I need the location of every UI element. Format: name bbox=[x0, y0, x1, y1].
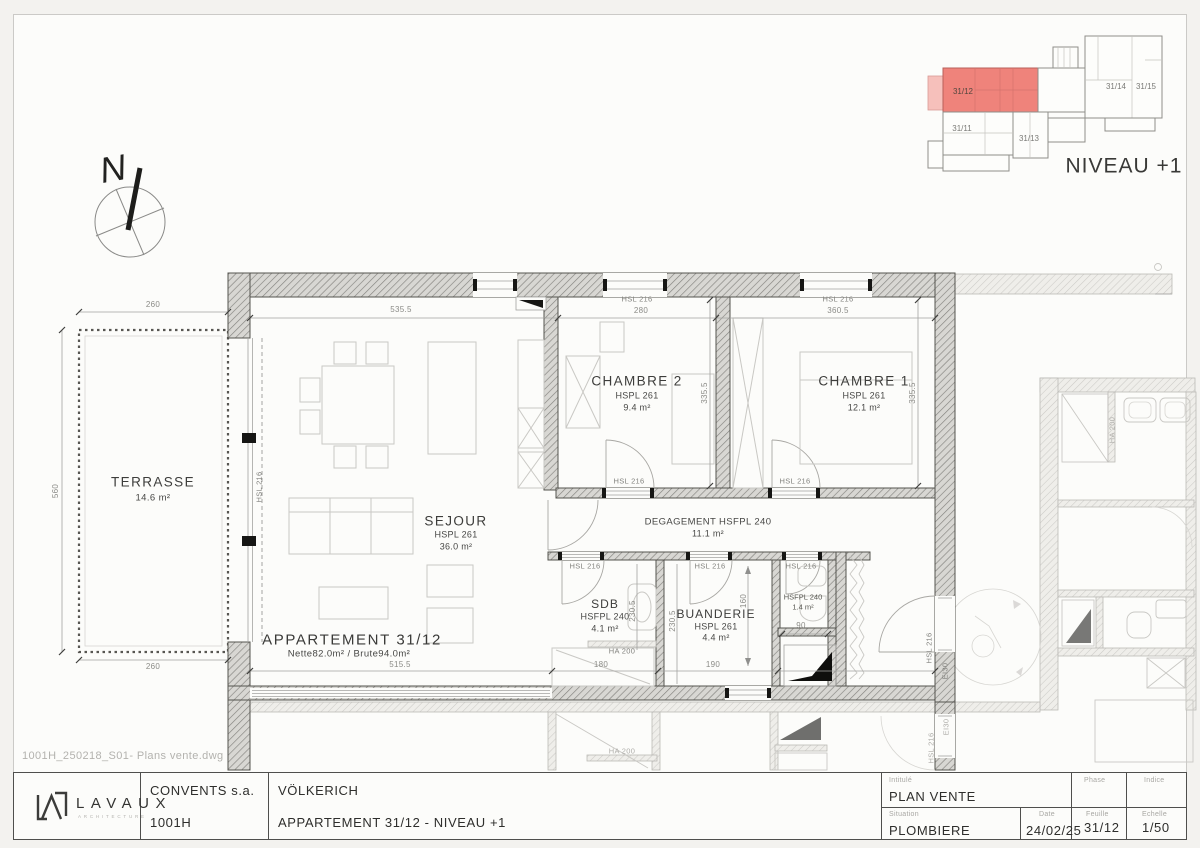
sejour-height: HSPL 261 bbox=[434, 531, 477, 540]
accessibility-clearance-symbol bbox=[945, 589, 1041, 685]
dim-lower-fire-rating: EI30 bbox=[942, 719, 950, 736]
title-block: LAVAUX ARCHITECTURE CONVENTS s.a. 1001H … bbox=[13, 772, 1187, 840]
intitule-value: PLAN VENTE bbox=[889, 789, 976, 804]
file-name-label: 1001H_250218_S01- Plans vente.dwg bbox=[22, 750, 224, 762]
wc-height: HSFPL 240 bbox=[784, 593, 823, 601]
indice-field-label: Indice bbox=[1144, 777, 1164, 784]
dim-sdb-width: 230.5 bbox=[629, 600, 637, 622]
keyplan-unit-3113: 31/13 bbox=[1019, 135, 1039, 143]
dim-ch1-depth: 335.5 bbox=[909, 382, 917, 404]
project-name: VÖLKERICH bbox=[278, 783, 359, 798]
dim-ch1-width: 360.5 bbox=[827, 307, 849, 315]
dim-ch1-door: HSL 216 bbox=[779, 477, 810, 485]
client-name: CONVENTS s.a. bbox=[150, 783, 255, 798]
dim-ch2-width: 280 bbox=[634, 307, 648, 315]
keyplan-unit-3115: 31/15 bbox=[1136, 83, 1156, 91]
keyplan-unit-3111: 31/11 bbox=[952, 125, 971, 133]
dim-ch2-door: HSL 216 bbox=[613, 477, 644, 485]
dim-ch2-window: HSL 216 bbox=[621, 295, 652, 303]
dim-lower-halfwall: HA 200 bbox=[609, 747, 635, 755]
dim-sdb-halfwall: HA 200 bbox=[609, 647, 635, 655]
dim-entry-door: HSL 216 bbox=[925, 632, 933, 663]
date-field-label: Date bbox=[1039, 811, 1055, 818]
dim-buanderie-bottom: 190 bbox=[706, 661, 720, 669]
degagement-area: 11.1 m² bbox=[692, 530, 724, 539]
dim-wc-door: HSL 216 bbox=[785, 562, 816, 570]
feuille-field-label: Feuille bbox=[1086, 811, 1109, 818]
level-label: NIVEAU +1 bbox=[1066, 156, 1183, 177]
dim-ch1-window: HSL 216 bbox=[822, 295, 853, 303]
dim-terrace-window: HSL 216 bbox=[255, 471, 263, 502]
dim-terrace-bottom: 260 bbox=[146, 663, 160, 671]
dim-lower-door: HSL 216 bbox=[927, 732, 935, 763]
sdb-height: HSFPL 240 bbox=[581, 613, 630, 622]
project-number: 1001H bbox=[150, 815, 191, 830]
dim-apartment-bottom: 515.5 bbox=[389, 661, 411, 669]
neighbor-top-wall bbox=[940, 264, 1172, 295]
chambre2-area: 9.4 m² bbox=[623, 404, 650, 413]
apartment-label: APPARTEMENT 31/12 bbox=[262, 633, 442, 648]
sdb-area: 4.1 m² bbox=[591, 625, 618, 634]
terrasse-label: TERRASSE bbox=[111, 475, 195, 489]
drawing-title: APPARTEMENT 31/12 - NIVEAU +1 bbox=[278, 815, 506, 830]
buanderie-height: HSPL 261 bbox=[694, 623, 737, 632]
dim-buanderie-length: 160 bbox=[740, 594, 748, 608]
floor-plan-drawing bbox=[0, 0, 1200, 848]
title-block-divider bbox=[1126, 773, 1127, 839]
apartment-areas: Nette82.0m² / Brute94.0m² bbox=[288, 649, 410, 659]
title-block-divider bbox=[268, 773, 269, 839]
dim-sdb-door: HSL 216 bbox=[569, 562, 600, 570]
sejour-label: SEJOUR bbox=[424, 514, 487, 528]
dim-terrace-top: 260 bbox=[146, 301, 160, 309]
drawing-sheet: TERRASSE 14.6 m² SEJOUR HSPL 261 36.0 m²… bbox=[0, 0, 1200, 848]
dim-buanderie-width: 230.5 bbox=[669, 610, 677, 632]
chambre2-label: CHAMBRE 2 bbox=[591, 374, 682, 388]
adjacent-unit-below bbox=[228, 702, 1040, 770]
chambre1-area: 12.1 m² bbox=[848, 404, 881, 413]
chambre2-height: HSPL 261 bbox=[615, 392, 658, 401]
key-plan bbox=[928, 36, 1162, 171]
title-block-divider bbox=[881, 807, 1186, 808]
dim-ch2-depth: 335.5 bbox=[701, 382, 709, 404]
phase-field-label: Phase bbox=[1084, 777, 1105, 784]
terrasse-outline bbox=[79, 330, 228, 652]
terrasse-area: 14.6 m² bbox=[135, 493, 170, 503]
keyplan-unit-3114: 31/14 bbox=[1106, 83, 1126, 91]
chambre1-height: HSPL 261 bbox=[842, 392, 885, 401]
situation-field-label: Situation bbox=[889, 811, 919, 818]
title-block-divider bbox=[881, 773, 882, 839]
dim-wc-clearance: 90 bbox=[796, 622, 806, 630]
situation-value: PLOMBIERE bbox=[889, 823, 970, 838]
degagement-label: DEGAGEMENT HSFPL 240 bbox=[645, 517, 772, 527]
adjacent-unit-right bbox=[1040, 378, 1196, 762]
dim-sdb-bottom: 180 bbox=[594, 661, 608, 669]
feuille-value: 31/12 bbox=[1084, 820, 1120, 835]
sdb-label: SDB bbox=[591, 598, 619, 610]
wc-area: 1.4 m² bbox=[792, 603, 813, 611]
buanderie-area: 4.4 m² bbox=[702, 634, 729, 643]
intitule-field-label: Intitulé bbox=[889, 777, 912, 784]
buanderie-label: BUANDERIE bbox=[676, 608, 755, 620]
doors bbox=[548, 440, 935, 686]
echelle-value: 1/50 bbox=[1142, 820, 1170, 835]
date-value: 24/02/25 bbox=[1026, 823, 1081, 838]
dim-buanderie-door: HSL 216 bbox=[694, 562, 725, 570]
sejour-area: 36.0 m² bbox=[440, 543, 473, 552]
lavaux-logo-icon bbox=[26, 783, 74, 831]
chambre1-label: CHAMBRE 1 bbox=[818, 374, 909, 388]
dim-entry-fire-rating: EI30 bbox=[941, 663, 949, 680]
logo-subtext: ARCHITECTURE bbox=[78, 814, 147, 819]
dim-sejour-top: 535.5 bbox=[390, 306, 412, 314]
title-block-divider bbox=[1020, 807, 1021, 839]
keyplan-unit-3112: 31/12 bbox=[953, 88, 973, 96]
dim-terrace-left: 560 bbox=[52, 484, 60, 498]
dim-neighbor-halfwall: HA 200 bbox=[1108, 417, 1116, 443]
echelle-field-label: Echelle bbox=[1142, 811, 1167, 818]
